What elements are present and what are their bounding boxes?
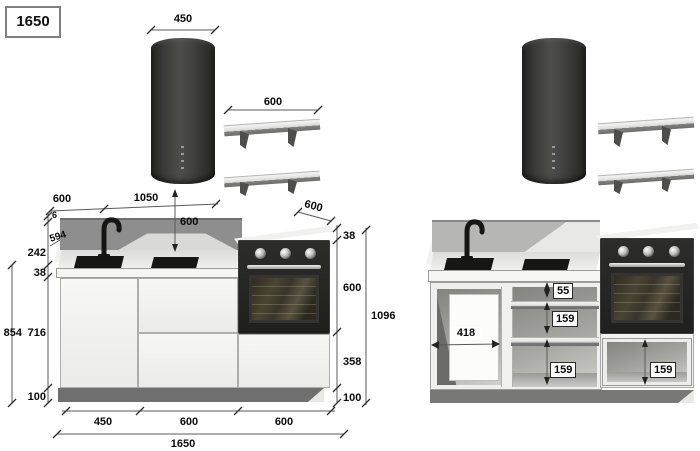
dim-tower-plinth: 100 — [343, 392, 361, 404]
dim-base-total-height: 854 — [0, 327, 22, 339]
oven-handle — [609, 263, 684, 267]
dim-bay-sink: 450 — [79, 416, 127, 428]
plinth-end — [678, 390, 694, 403]
sink — [444, 258, 494, 270]
splash-highlight — [60, 220, 242, 250]
oven-knob — [280, 248, 291, 259]
dim-tower-oven: 600 — [343, 282, 361, 294]
dim-bay-oven: 600 — [260, 416, 308, 428]
dim-run-total: 1650 — [157, 438, 209, 450]
cooktop — [151, 257, 199, 268]
countertop-front-edge — [428, 270, 602, 282]
dim-wall-seg-1050: 1050 — [118, 192, 174, 204]
oven-handle — [247, 265, 321, 269]
dim-splash-height: 242 — [18, 247, 46, 259]
range-hood — [522, 38, 586, 184]
plinth — [430, 390, 694, 403]
tower-drawer-front — [238, 334, 330, 388]
dim-wall-seg-600: 600 — [40, 193, 84, 205]
dim-tower-drawer: 358 — [343, 356, 361, 368]
sink-cabinet-door — [60, 278, 138, 388]
oven — [600, 238, 694, 334]
dim-counter-thickness: 38 — [18, 267, 46, 279]
splash-highlight — [432, 222, 600, 252]
dim-carcass-height: 716 — [20, 327, 46, 339]
wall-shelf-upper — [224, 119, 321, 137]
oven-knob — [669, 246, 680, 257]
countertop-front-edge — [56, 268, 240, 278]
sink — [74, 256, 124, 268]
dim-shelf-width: 600 — [249, 96, 297, 108]
dim-mid-drawer: 159 — [552, 311, 578, 327]
dim-bay-drawers: 600 — [165, 416, 213, 428]
dim-oven-drawer: 159 — [650, 362, 676, 378]
wall-shelf-lower — [598, 169, 694, 186]
carcass-shelf — [511, 337, 599, 346]
wall-shelf-lower — [224, 171, 320, 188]
dim-opening-width: 418 — [450, 327, 482, 339]
dim-splash-trim: 6 — [52, 211, 57, 221]
hood-vent-lights — [552, 146, 555, 172]
dim-tower-counter: 38 — [343, 230, 355, 242]
range-hood — [151, 38, 215, 184]
hood-vent-lights — [181, 146, 184, 172]
dim-plinth-height: 100 — [20, 391, 46, 403]
plinth-end — [308, 388, 324, 402]
oven — [238, 240, 330, 334]
plinth — [58, 388, 324, 402]
total-width-legend: 1650 — [5, 6, 61, 38]
tower-drawer-opening — [602, 338, 692, 386]
oven-knob — [643, 246, 654, 257]
kitchen-dimension-drawing: 1650 — [0, 0, 700, 451]
oven-knob — [618, 246, 629, 257]
dim-counter-depth: 600 — [295, 196, 331, 216]
oven-knob — [305, 248, 316, 259]
cooktop — [522, 259, 570, 270]
dim-low-drawer: 159 — [550, 362, 576, 378]
backsplash — [432, 220, 600, 252]
oven-knob — [255, 248, 266, 259]
dim-hood-width: 450 — [159, 13, 207, 25]
oven-door-glass — [611, 273, 683, 323]
dim-tower-total: 1096 — [371, 310, 395, 322]
oven-door-glass — [249, 275, 319, 323]
dim-hood-clearance: 600 — [180, 216, 198, 228]
carcass-shelf — [511, 301, 599, 309]
drawer-front-upper — [138, 278, 238, 333]
drawer-front-lower — [138, 333, 238, 388]
dim-top-drawer: 55 — [553, 283, 573, 299]
wall-shelf-upper — [598, 117, 695, 135]
backsplash — [60, 218, 242, 250]
